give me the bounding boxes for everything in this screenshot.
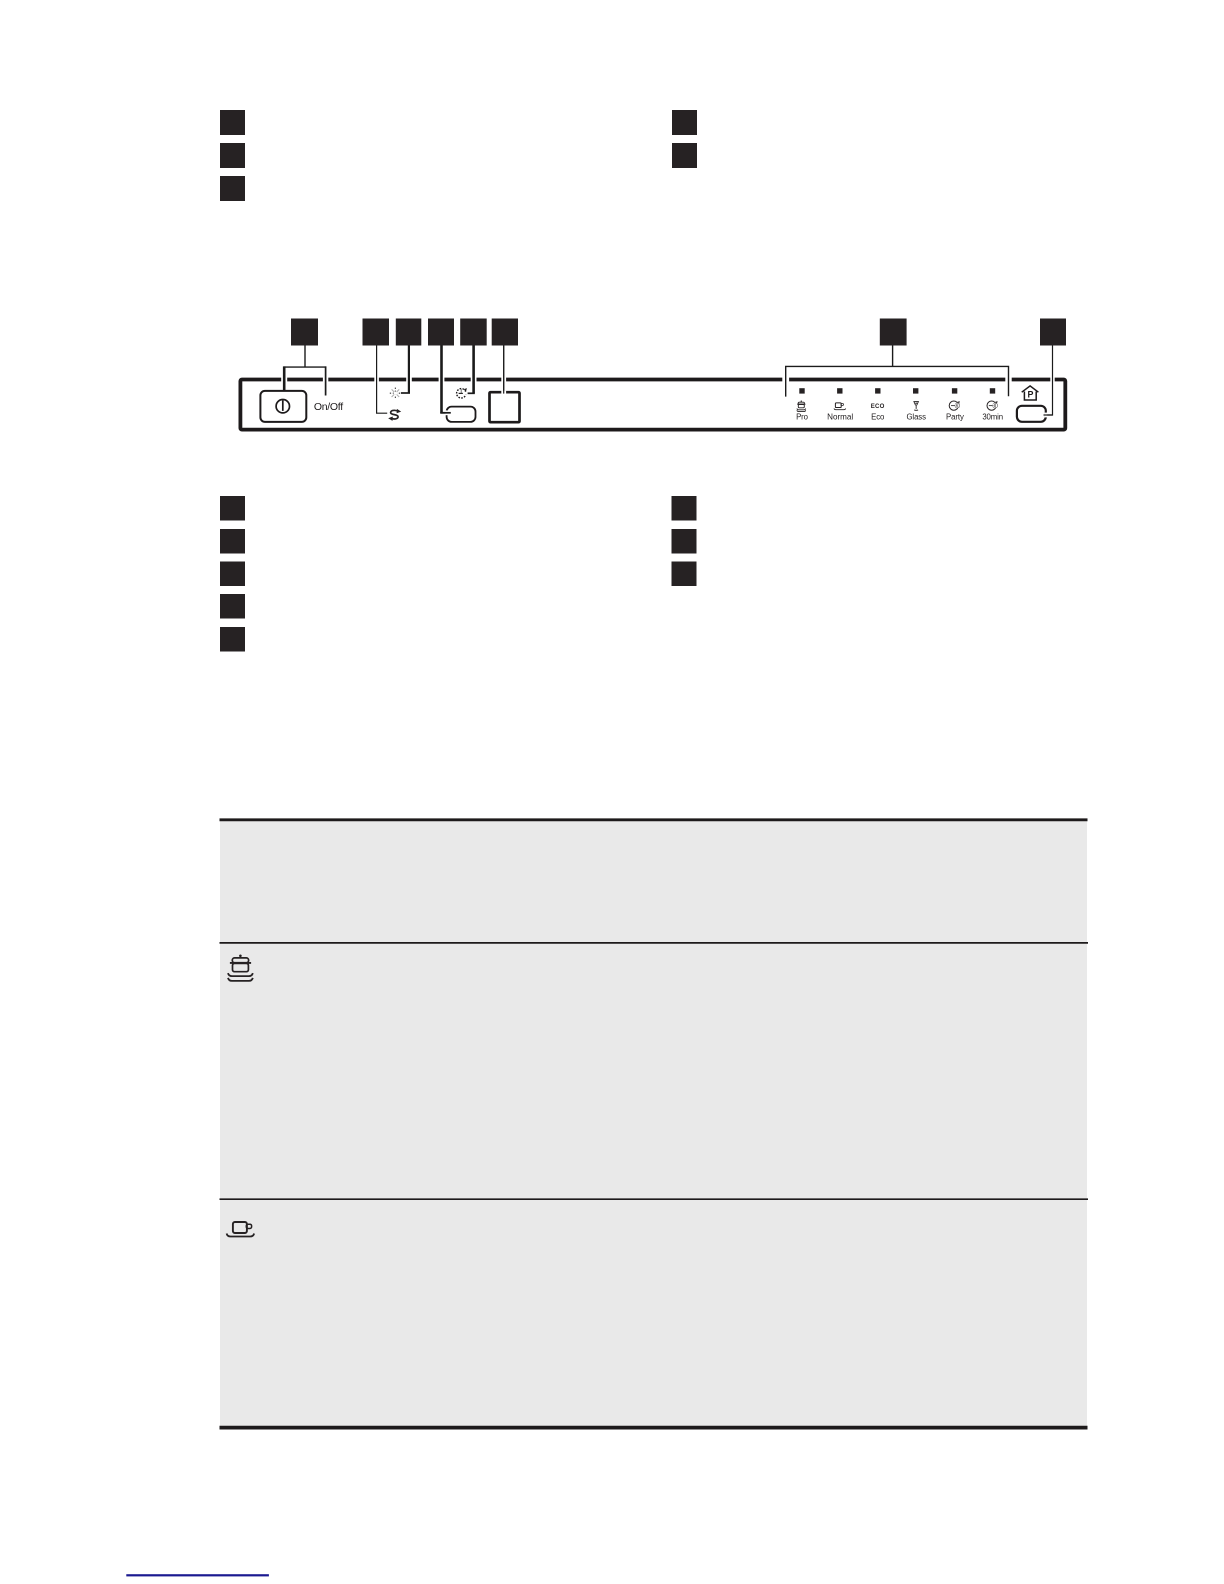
svg-text:ECO: ECO xyxy=(871,403,885,410)
svg-text:On/Off: On/Off xyxy=(314,401,343,413)
svg-text:P: P xyxy=(1027,390,1033,400)
svg-text:Eco: Eco xyxy=(871,413,885,422)
svg-text:30: 30 xyxy=(992,404,998,410)
svg-text:30min: 30min xyxy=(982,413,1003,422)
svg-text:Party: Party xyxy=(946,413,964,422)
svg-text:Glass: Glass xyxy=(906,413,926,422)
svg-text:Normal: Normal xyxy=(827,413,853,422)
svg-text:30: 30 xyxy=(955,404,961,410)
svg-text:Pro: Pro xyxy=(796,413,809,422)
